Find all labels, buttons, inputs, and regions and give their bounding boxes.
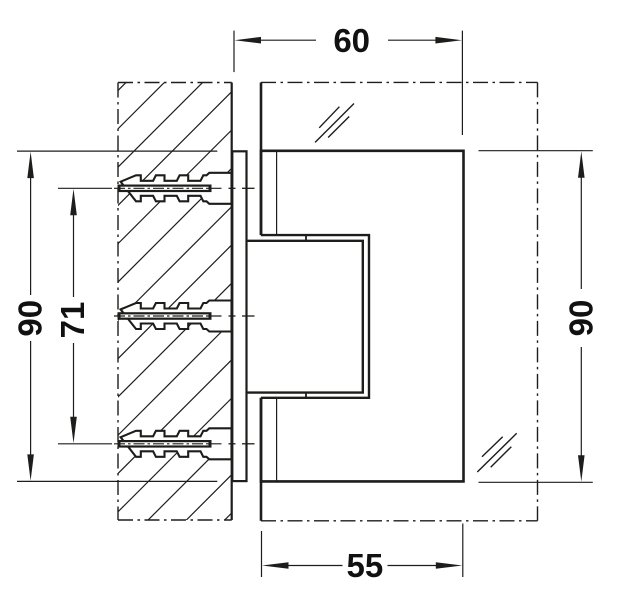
svg-text:71: 71 bbox=[54, 302, 91, 339]
svg-text:90: 90 bbox=[563, 300, 600, 337]
svg-text:60: 60 bbox=[333, 22, 370, 59]
svg-text:55: 55 bbox=[347, 547, 384, 584]
svg-text:90: 90 bbox=[12, 300, 49, 337]
